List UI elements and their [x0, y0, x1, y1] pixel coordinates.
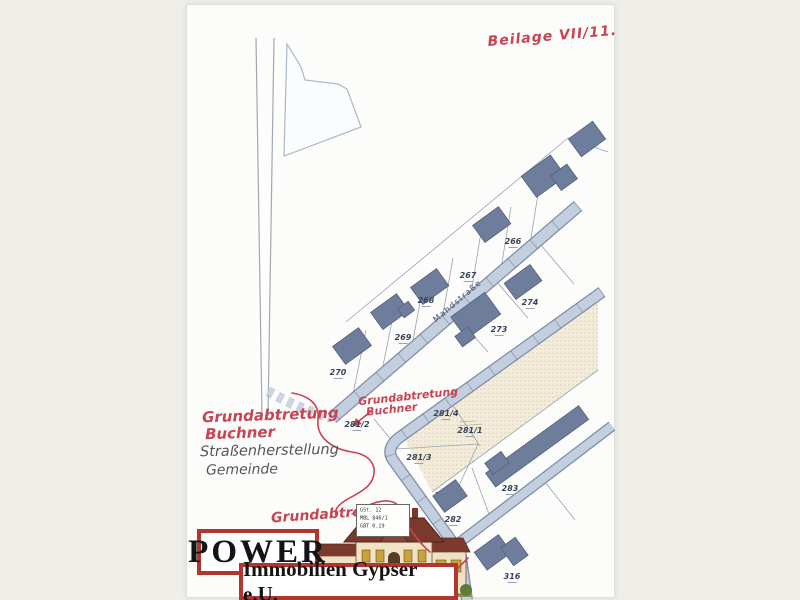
parcel-label: 281/3: [406, 454, 431, 464]
logo-subtitle-box: Immobilien Gypser e.U.: [239, 563, 458, 600]
logo-subtitle: Immobilien Gypser e.U.: [243, 557, 454, 600]
stamp-row: MBL 846/1: [360, 515, 399, 522]
parcel-label: 270: [330, 369, 347, 379]
vertical-road-lines: [256, 38, 274, 416]
stamp-row: GBT 0.19: [360, 523, 399, 530]
parcel-label: 316: [504, 573, 521, 583]
parcel-label: 269: [395, 334, 412, 344]
annotation-buchner-left: Buchner: [205, 423, 276, 443]
parcel-label: 282: [445, 516, 462, 526]
stamp-row: GSt. 12: [360, 507, 399, 514]
annotation-strassenherstellung: Straßenherstellung: [200, 442, 339, 460]
parcel-label: 274: [522, 299, 539, 309]
parcel-label: 266: [505, 238, 522, 248]
parcel-label: 283: [502, 485, 519, 495]
parcel-label: 281/2: [344, 421, 369, 431]
parcel-label: 281/1: [457, 427, 482, 437]
parcel-label: 281/4: [433, 410, 458, 420]
parcel-label: 267: [460, 272, 477, 282]
annotation-gemeinde: Gemeinde: [206, 461, 278, 478]
parcel-label: 268: [418, 297, 435, 307]
parcel-label: 273: [491, 326, 508, 336]
irregular-parcel-outline: [284, 44, 361, 156]
survey-stamp-box: GSt. 12 MBL 846/1 GBT 0.19: [356, 504, 410, 537]
scanned-site-plan: Mahdstraße: [0, 0, 800, 600]
